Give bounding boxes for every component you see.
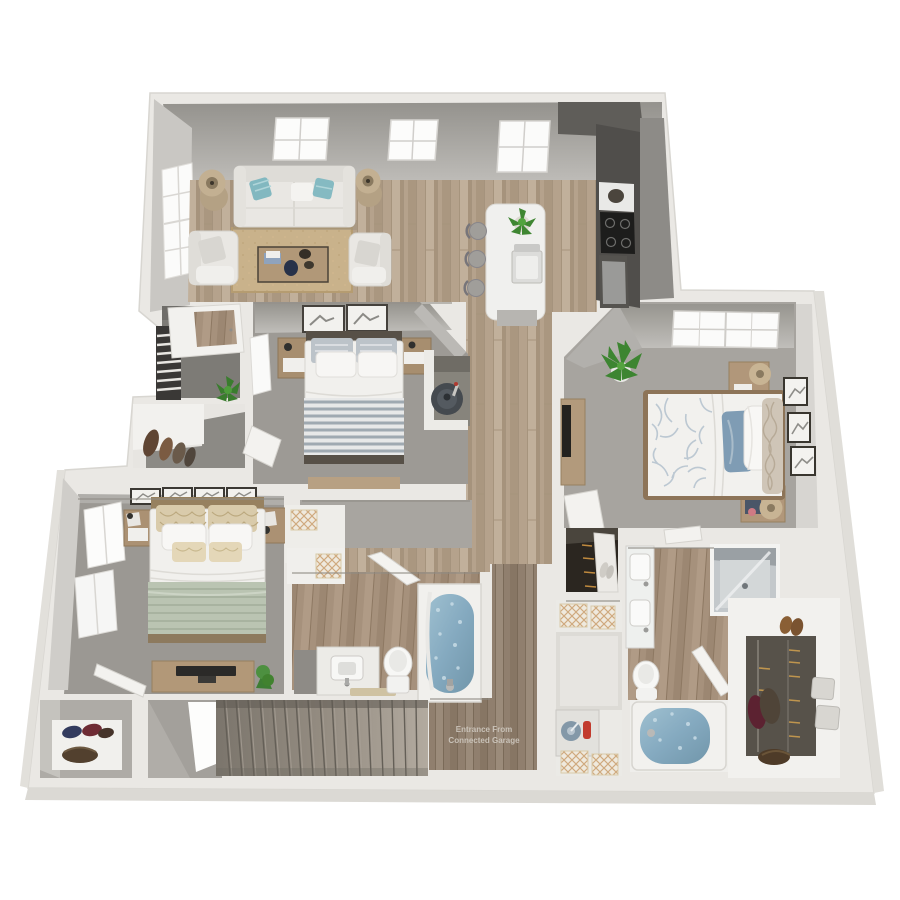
svg-text:Entrance From: Entrance From bbox=[456, 725, 512, 734]
svg-text:Connected Garage: Connected Garage bbox=[448, 736, 520, 745]
